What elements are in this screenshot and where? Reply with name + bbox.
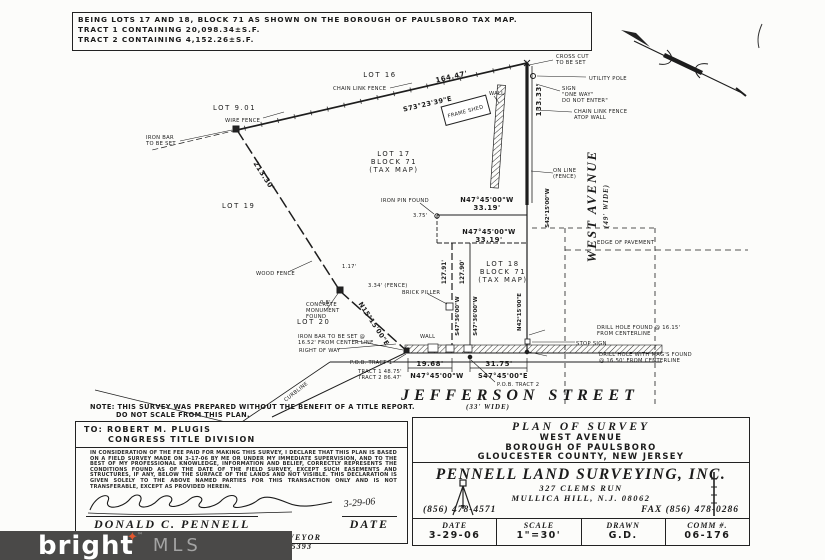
- label-dim-164: 164.47': [435, 69, 469, 84]
- info-cell-drawn: DRAWN G.D.: [582, 519, 666, 545]
- transit-tripod-icon: [449, 479, 477, 517]
- survey-note: NOTE: THIS SURVEY WAS PREPARED WITHOUT T…: [90, 403, 415, 419]
- scale-label: SCALE: [497, 521, 580, 530]
- wall-strip: [490, 85, 505, 188]
- label-lot17-c: (TAX MAP): [369, 166, 418, 174]
- label-lot17-b: BLOCK 71: [371, 158, 417, 166]
- bright-mls-watermark: bright✦™ MLS: [0, 531, 292, 560]
- signature-date: 3-29-06: [342, 496, 376, 510]
- label-dim-334: 3.34' (FENCE): [368, 283, 408, 289]
- label-iron-bar-1b: TO BE SET: [145, 141, 176, 147]
- label-bearing-3319a: N47°45'00"W: [460, 196, 514, 204]
- label-jefferson-street: JEFFERSON STREET: [400, 387, 639, 404]
- plan-title-section: PLAN OF SURVEY WEST AVENUE BOROUGH OF PA…: [413, 418, 749, 463]
- label-west-avenue-width: (49' WIDE): [602, 184, 610, 228]
- info-cell-scale: SCALE 1"=30': [497, 519, 581, 545]
- north-arrow: [621, 30, 746, 96]
- label-bearing-s4736a: S47°36'00"W: [455, 296, 461, 336]
- label-sign-3: DO NOT ENTER": [562, 98, 608, 104]
- surveyor-name: DONALD C. PENNELL: [86, 516, 258, 532]
- label-lot16: LOT 16: [363, 71, 396, 79]
- label-bearing-bottom2: S47°45'00"E: [478, 372, 528, 380]
- survey-note-line2: DO NOT SCALE FROM THIS PLAN.: [116, 411, 415, 419]
- label-iron-pin-found: IRON PIN FOUND: [381, 198, 429, 204]
- label-dim-1968: 19.68': [416, 360, 443, 368]
- label-lot18-a: LOT 18: [486, 260, 519, 268]
- comm-label: COMM #.: [666, 521, 749, 530]
- label-drill-hole-2b: @ 16.50' FROM CENTERLINE: [599, 358, 680, 364]
- label-on-line-2: (FENCE): [553, 174, 576, 180]
- label-tract2-frontage: TRACT 2 86.47': [357, 375, 402, 381]
- to-block: TO: ROBERT M. PLUGIS CONGRESS TITLE DIVI…: [76, 422, 407, 448]
- label-dim-3319b: 33.19': [475, 236, 502, 244]
- label-jefferson-width: (33' WIDE): [466, 403, 510, 411]
- title-block: PLAN OF SURVEY WEST AVENUE BOROUGH OF PA…: [412, 417, 750, 546]
- label-bearing-west-ave: S42°15'00"W: [545, 188, 551, 228]
- label-clf-atop-wall-2: ATOP WALL: [574, 115, 606, 121]
- label-lot-9-01: LOT 9.01: [213, 104, 256, 112]
- street-lines-west-avenue: [532, 228, 748, 408]
- label-dim-12790: 127.90': [460, 260, 466, 284]
- to-line1: TO: ROBERT M. PLUGIS: [84, 425, 399, 435]
- label-dim-117: 1.17': [342, 264, 356, 270]
- label-dim-08: 0.8': [320, 300, 331, 306]
- drawn-value: G.D.: [582, 530, 665, 541]
- label-bearing-n4215: N42°15'00"E: [517, 293, 523, 331]
- label-lot18-c: (TAX MAP): [478, 276, 527, 284]
- label-lot17-a: LOT 17: [377, 150, 410, 158]
- label-lot18-b: BLOCK 71: [480, 268, 526, 276]
- to-line2: CONGRESS TITLE DIVISION: [108, 435, 399, 445]
- label-wood-fence: WOOD FENCE: [256, 271, 295, 277]
- label-lot19: LOT 19: [222, 202, 255, 210]
- scale-value: 1"=30': [497, 530, 580, 541]
- label-edge-of-pavement: EDGE OF PAVEMENT: [597, 240, 655, 246]
- drawn-label: DRAWN: [582, 521, 665, 530]
- label-dim-133: 133.33': [535, 84, 543, 117]
- label-bearing-3319b: N47°45'00"W: [462, 228, 516, 236]
- watermark-brand: bright: [38, 533, 134, 559]
- info-cell-comm: COMM #. 06-176: [666, 519, 749, 545]
- label-dim-3319a: 33.19': [473, 204, 500, 212]
- info-row: DATE 3-29-06 SCALE 1"=30' DRAWN G.D. COM…: [413, 519, 749, 545]
- watermark-tm: ™: [137, 532, 143, 539]
- date-label: DATE: [413, 521, 496, 530]
- signature-row: 3-29-06: [82, 490, 401, 516]
- label-dim-3175: 31.75': [485, 360, 512, 368]
- plan-county: GLOUCESTER COUNTY, NEW JERSEY: [413, 452, 749, 462]
- survey-sheet: BEING LOTS 17 AND 18, BLOCK 71 AS SHOWN …: [0, 0, 825, 560]
- signature-scribble: 3-29-06: [82, 490, 412, 516]
- company-fax: FAX (856) 478-0286: [641, 505, 739, 515]
- label-drill-hole-1b: FROM CENTERLINE: [597, 331, 651, 337]
- comm-value: 06-176: [666, 530, 749, 541]
- certification-block: TO: ROBERT M. PLUGIS CONGRESS TITLE DIVI…: [75, 421, 408, 544]
- watermark-suffix: MLS: [153, 535, 202, 556]
- certification-text: IN CONSIDERATION OF THE FEE PAID FOR MAK…: [90, 451, 397, 490]
- survey-note-line1: NOTE: THIS SURVEY WAS PREPARED WITHOUT T…: [90, 403, 415, 411]
- label-chain-link-fence: CHAIN LINK FENCE: [333, 86, 386, 92]
- label-utility-pole: UTILITY POLE: [589, 76, 627, 82]
- handwritten-mark: [758, 24, 762, 48]
- label-dim-213: 213.30': [251, 160, 275, 192]
- label-wall-bottom: WALL: [420, 334, 435, 340]
- label-iron-bar-2b: 16.52' FROM CENTER LINE: [298, 340, 374, 346]
- label-dim-375: 3.75': [413, 213, 427, 219]
- info-cell-date: DATE 3-29-06: [413, 519, 497, 545]
- date-label: DATE: [342, 516, 397, 532]
- label-pob-tract1: P.O.B. TRACT 1: [350, 360, 392, 366]
- label-dim-12791: 127.91': [442, 260, 448, 284]
- label-bearing-bottom1: N47°45'00"W: [410, 372, 464, 380]
- label-brick-piller: BRICK PILLER: [402, 290, 440, 296]
- leveling-rod-icon: [709, 471, 719, 517]
- surveyor-company-section: PENNELL LAND SURVEYING, INC. 327 CLEMS R…: [413, 463, 749, 519]
- label-lot20: LOT 20: [297, 318, 330, 326]
- label-right-of-way: RIGHT OF WAY: [299, 348, 341, 354]
- label-bearing-s4736b: S47°36'00"W: [473, 296, 479, 336]
- label-stop-sign: STOP SIGN: [576, 341, 607, 347]
- label-cross-cut-2: TO BE SET: [555, 60, 586, 66]
- label-wire-fence: WIRE FENCE: [225, 118, 260, 124]
- date-value: 3-29-06: [413, 530, 496, 541]
- label-wall-top: WALL: [489, 91, 504, 97]
